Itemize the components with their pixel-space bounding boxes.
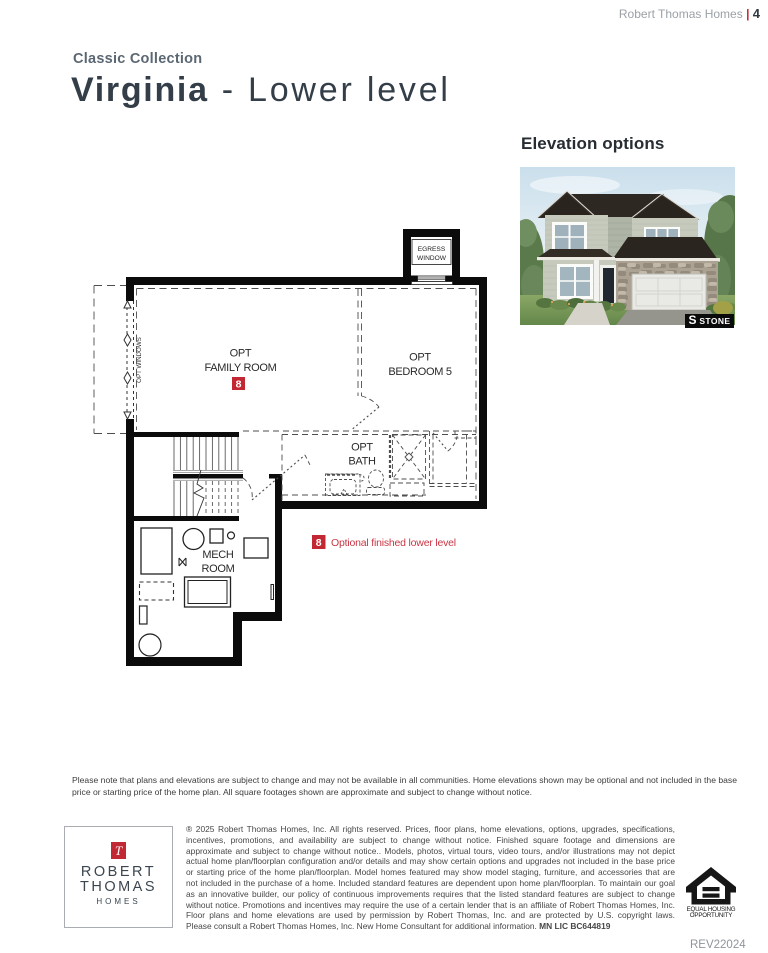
svg-text:MECH: MECH: [202, 549, 234, 561]
svg-text:OPT WINDOWS: OPT WINDOWS: [136, 337, 143, 383]
svg-text:OPT: OPT: [230, 348, 252, 360]
svg-text:BEDROOM 5: BEDROOM 5: [388, 366, 451, 378]
svg-text:FAMILY ROOM: FAMILY ROOM: [204, 362, 276, 374]
svg-text:Optional finished lower level: Optional finished lower level: [331, 537, 456, 549]
svg-text:EGRESS: EGRESS: [418, 246, 446, 253]
svg-text:ROOM: ROOM: [201, 563, 234, 575]
svg-text:OPT: OPT: [351, 442, 373, 454]
svg-text:WINDOW: WINDOW: [417, 255, 447, 262]
svg-text:BATH: BATH: [348, 456, 376, 468]
svg-text:8: 8: [236, 379, 242, 391]
svg-text:OPPORTUNITY: OPPORTUNITY: [690, 912, 732, 918]
svg-text:OPT: OPT: [409, 352, 431, 364]
svg-text:8: 8: [316, 537, 322, 549]
